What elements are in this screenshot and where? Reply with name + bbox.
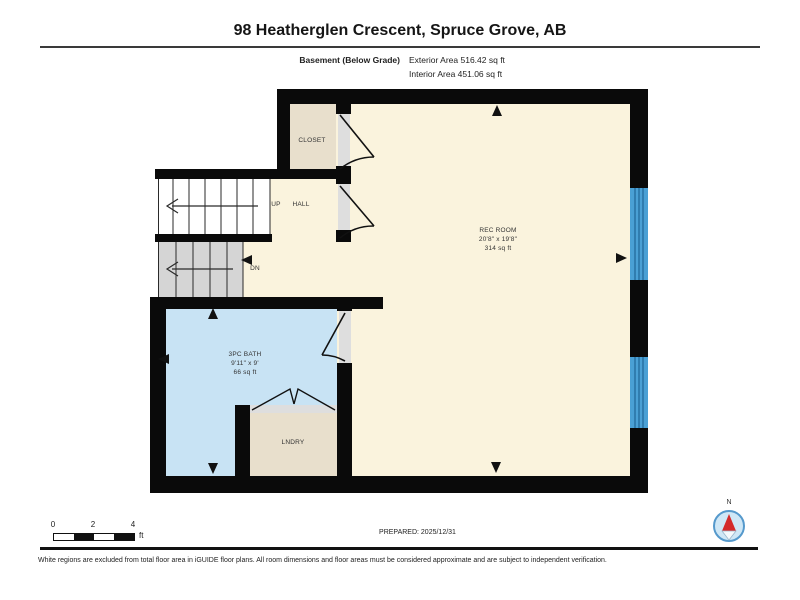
hall-label: HALL (287, 200, 315, 209)
scale-segment (94, 534, 114, 540)
exterior-area-value: Exterior Area 516.42 sq ft (409, 55, 505, 65)
wall-closet-west (277, 89, 290, 179)
laundry-label: LNDRY (243, 438, 343, 447)
bath-dims: 9'11" x 9' (185, 359, 305, 368)
wall-closet-east-upper (336, 104, 351, 114)
floor-plan-page: 98 Heatherglen Crescent, Spruce Grove, A… (0, 0, 800, 600)
window-lower (630, 357, 648, 428)
wall-left-bath (150, 297, 166, 476)
scale-segment (54, 534, 74, 540)
wall-hall-east-lower (336, 230, 351, 242)
compass-icon (714, 511, 744, 541)
wall-bath-east-upper (337, 297, 352, 311)
stairs-up-floor (158, 179, 270, 234)
laundry-door-track (250, 405, 337, 413)
scale-segment (114, 534, 134, 540)
floor-name-label: Basement (Below Grade) (250, 55, 400, 65)
closet-label: CLOSET (288, 136, 336, 145)
rec-room-area: 314 sq ft (438, 244, 558, 253)
wall-stair-top (155, 169, 351, 179)
rec-room-label: REC ROOM 20'8" x 19'8" 314 sq ft (438, 226, 558, 253)
rec-room-dims: 20'8" x 19'8" (438, 235, 558, 244)
scale-label-0: 0 (47, 520, 59, 529)
bath-door-threshold (339, 311, 351, 363)
interior-area-value: Interior Area 451.06 sq ft (409, 69, 502, 79)
wall-closet-east-lower (336, 166, 351, 184)
scale-bar (53, 533, 135, 541)
wall-right-middle (630, 280, 648, 357)
scale-label-2: 2 (87, 520, 99, 529)
page-title: 98 Heatherglen Crescent, Spruce Grove, A… (0, 22, 800, 40)
wall-top (277, 89, 648, 104)
rec-room-name: REC ROOM (438, 226, 558, 235)
stairs-down-label: DN (245, 264, 265, 273)
stairs-up-label: UP (266, 200, 286, 209)
disclaimer-text: White regions are excluded from total fl… (38, 557, 758, 564)
bath-name: 3PC BATH (185, 350, 305, 359)
scale-segment (74, 534, 94, 540)
closet-door-threshold (338, 114, 350, 166)
compass-north-label: N (722, 499, 736, 506)
stairs-down-floor (158, 242, 243, 297)
footer-divider (40, 547, 758, 550)
wall-bottom (150, 476, 648, 493)
scale-label-4: 4 (127, 520, 139, 529)
window-upper (630, 188, 648, 280)
prepared-date: PREPARED: 2025/12/31 (330, 529, 505, 536)
scale-unit-label: ft (139, 531, 143, 540)
wall-right-upper (630, 89, 648, 188)
wall-bath-east-lower (337, 363, 352, 477)
title-divider (40, 46, 760, 48)
hall-door-threshold (338, 184, 350, 230)
wall-stair-divider (155, 234, 272, 242)
bath-area: 66 sq ft (185, 368, 305, 377)
bath-label: 3PC BATH 9'11" x 9' 66 sq ft (185, 350, 305, 377)
